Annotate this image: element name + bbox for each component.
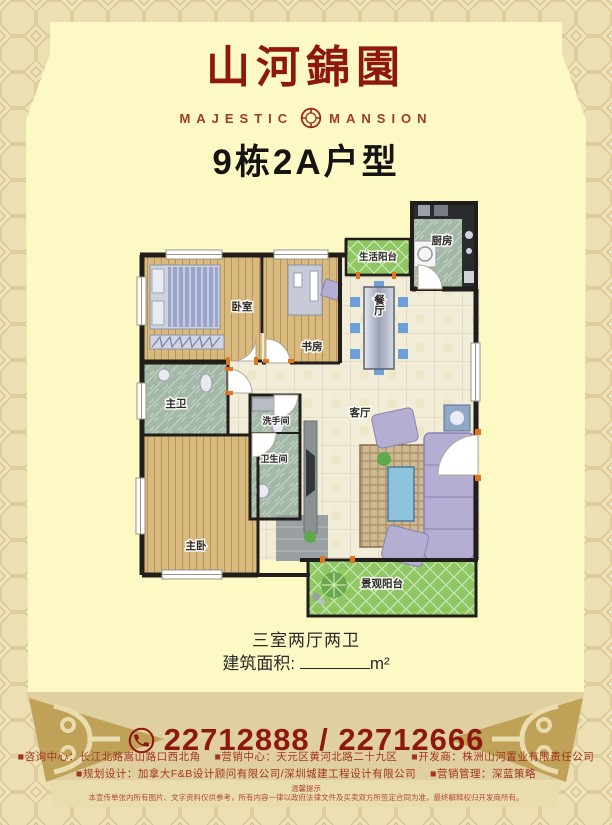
contact-item: ■规划设计：加拿大F&B设计顾问有限公司/深圳城建工程设计有限公司 [76,768,416,780]
floor-plan: 生活阳台 厨房 卧室 书房 餐厅 主卫 洗手间 卫生间 客厅 主卧 景观阳台 [126,193,486,623]
room-label-life-balcony: 生活阳台 [359,251,398,263]
seal-icon [300,107,322,129]
brand-english-right: MANSION [329,111,432,126]
room-label-bathroom: 卫生间 [260,453,287,464]
area-blank-line [300,654,370,669]
contact-line-1: ■咨询中心：长江北路嵩山路口西北角■营销中心：天元区黄河北路二十九区■开发商：株… [0,749,612,764]
contact-item: ■营销中心：天元区黄河北路二十九区 [215,751,398,763]
spec-area-unit: m² [370,654,390,673]
brand-english-left: MAJESTIC [179,111,293,126]
page-title: 9栋2A户型 [0,134,612,185]
contact-item: ■营销管理：深蓝策略 [430,768,536,780]
contact-item: ■开发商：株洲山河置业有限责任公司 [411,751,594,763]
room-label-kitchen: 厨房 [432,234,453,247]
room-label-living: 客厅 [349,406,371,419]
room-label-washroom: 洗手间 [262,415,289,426]
brand-logo: 山河錦園 [0,46,612,90]
flyer-page: 山河錦園 MAJESTIC MANSION 9栋2A户型 [0,0,612,825]
floor-master-bedroom [140,435,258,575]
room-label-bedroom: 卧室 [232,300,253,313]
room-label-master-bath: 主卫 [166,397,187,410]
spec-area: 建筑面积: m² [0,649,612,674]
room-label-view-balcony: 景观阳台 [360,577,403,590]
room-label-dining: 餐厅 [373,294,385,317]
bed-bedroom [150,265,220,329]
notice-body: 本宣传单张内所有图片、文字资料仅供参考，所有内容一律以政府法律文件及买卖双方所签… [0,792,612,803]
contact-line-2: ■规划设计：加拿大F&B设计顾问有限公司/深圳城建工程设计有限公司■营销管理：深… [0,766,612,781]
brand-english: MAJESTIC MANSION [0,107,612,129]
tv-stand [304,421,317,543]
wardrobe-bedroom [150,335,224,349]
contact-item: ■咨询中心：长江北路嵩山路口西北角 [18,751,201,763]
room-label-master-bedroom: 主卧 [186,539,207,552]
spec-area-label: 建筑面积: [222,654,295,673]
spec-layout: 三室两厅两卫 [0,626,612,651]
room-label-study: 书房 [302,340,323,353]
floor-porch [276,515,328,561]
